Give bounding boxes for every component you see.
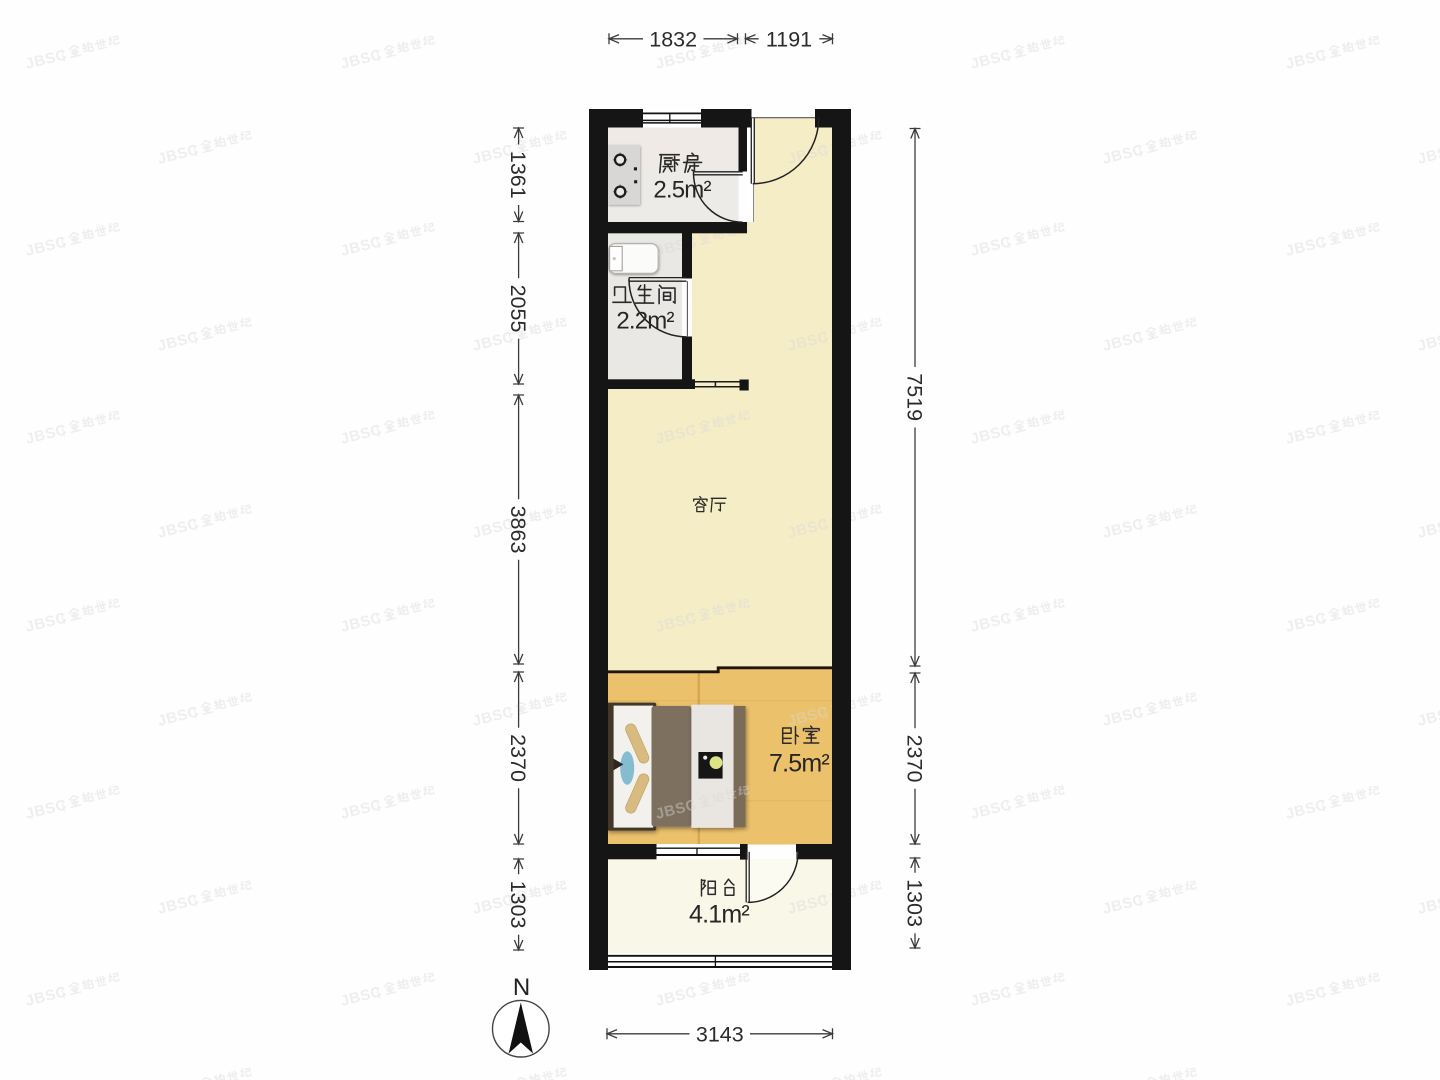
svg-text:1303: 1303	[506, 881, 530, 929]
svg-text:1361: 1361	[506, 151, 530, 199]
svg-text:2.2m²: 2.2m²	[616, 308, 674, 335]
svg-text:2370: 2370	[506, 734, 530, 782]
svg-text:3143: 3143	[696, 1023, 744, 1047]
svg-text:7.5m²: 7.5m²	[769, 750, 829, 778]
svg-text:N: N	[513, 974, 530, 1001]
svg-text:4.1m²: 4.1m²	[689, 901, 749, 929]
svg-text:7519: 7519	[902, 373, 926, 421]
svg-text:1303: 1303	[902, 879, 926, 927]
svg-text:2370: 2370	[902, 735, 926, 783]
svg-text:2.5m²: 2.5m²	[653, 177, 711, 204]
svg-text:1832: 1832	[649, 28, 697, 52]
svg-text:1191: 1191	[766, 28, 812, 52]
svg-text:2055: 2055	[506, 285, 530, 333]
svg-text:3863: 3863	[506, 506, 530, 554]
